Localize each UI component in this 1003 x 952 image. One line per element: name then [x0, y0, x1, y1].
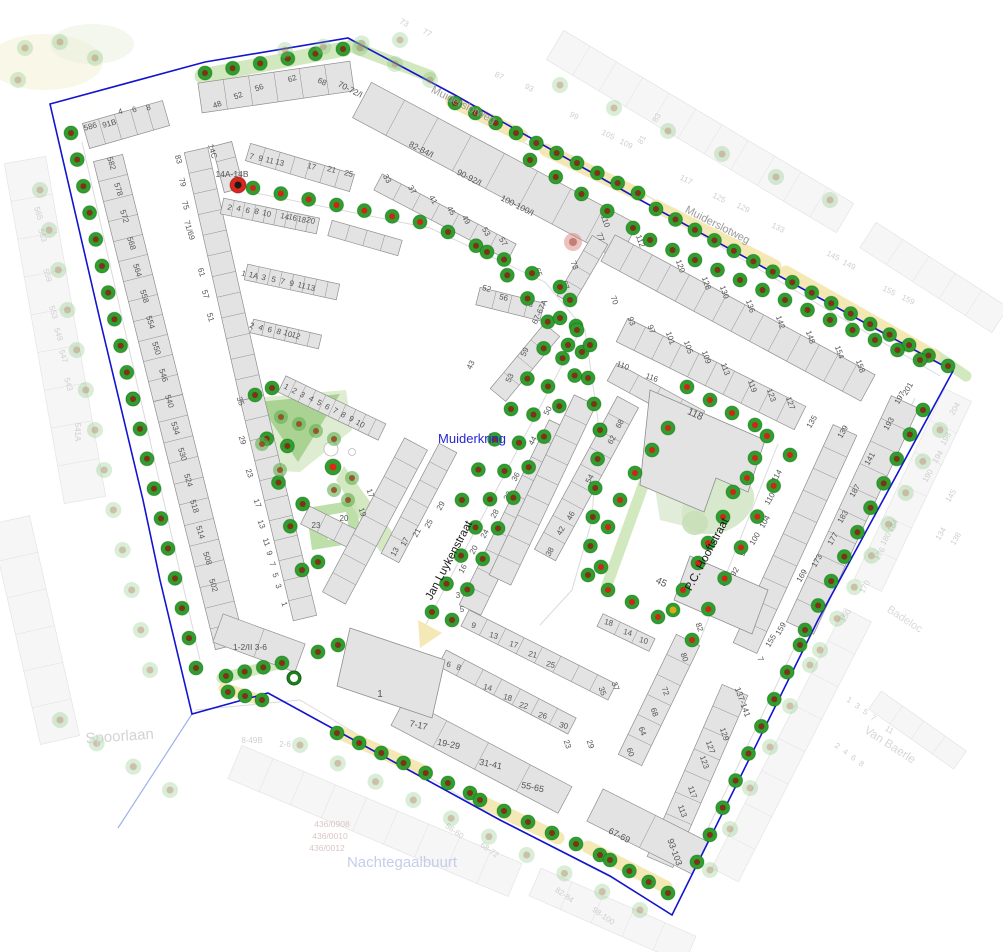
tree-marker[interactable]	[793, 638, 807, 652]
tree-marker[interactable]	[277, 42, 293, 58]
house-number-label: 25	[423, 517, 435, 530]
tree-marker[interactable]	[509, 126, 523, 140]
tree-marker[interactable]	[523, 153, 537, 167]
tree-marker[interactable]	[553, 280, 567, 294]
tree-marker[interactable]	[824, 574, 838, 588]
tree-marker[interactable]	[476, 552, 490, 566]
house-number-label: 61	[196, 267, 207, 279]
tree-marker[interactable]	[575, 187, 589, 201]
tree-marker[interactable]	[750, 510, 764, 524]
tree-marker[interactable]	[837, 550, 851, 564]
tree-marker[interactable]	[315, 39, 331, 55]
tree-marker[interactable]	[685, 633, 699, 647]
tree-marker[interactable]	[606, 100, 622, 116]
house-number-label: 93	[523, 82, 536, 94]
tree-marker[interactable]	[603, 853, 617, 867]
tree-marker[interactable]	[385, 209, 399, 223]
tree-marker[interactable]	[292, 737, 308, 753]
house-number-label: 134	[934, 525, 949, 542]
tree-marker[interactable]	[622, 864, 636, 878]
tree-marker[interactable]	[740, 471, 754, 485]
tree-marker[interactable]	[756, 283, 770, 297]
tree-marker[interactable]	[387, 56, 403, 72]
street-label: Nachtegaalbuurt	[347, 854, 458, 871]
tree-marker[interactable]	[824, 296, 838, 310]
house-number-label: 23	[244, 467, 256, 479]
tree-marker[interactable]	[591, 452, 605, 466]
tree-marker[interactable]	[120, 365, 134, 379]
tree-marker[interactable]	[780, 665, 794, 679]
tree-marker[interactable]	[392, 32, 408, 48]
tree-marker[interactable]	[688, 223, 702, 237]
tree-marker[interactable]	[594, 884, 610, 900]
house-number-label: 159	[900, 293, 916, 307]
tree-marker[interactable]	[325, 459, 341, 475]
tree-marker[interactable]	[726, 485, 740, 499]
tree-marker[interactable]	[783, 448, 797, 462]
tree-marker[interactable]	[471, 463, 485, 477]
tree-marker[interactable]	[651, 610, 665, 624]
tree-marker[interactable]	[600, 204, 614, 218]
tree-marker[interactable]	[891, 343, 905, 357]
tree-marker[interactable]	[95, 259, 109, 273]
neighborhood-tree-map: 58691B4685825785725685645585545505465405…	[0, 0, 1003, 952]
tree-marker[interactable]	[107, 312, 121, 326]
tree-marker[interactable]	[272, 476, 286, 490]
tree-marker[interactable]	[189, 661, 203, 675]
tree-marker[interactable]	[643, 233, 657, 247]
house-number-label: 159	[774, 620, 789, 637]
tree-marker[interactable]	[327, 483, 341, 497]
tree-marker[interactable]	[590, 166, 604, 180]
tree-marker[interactable]	[32, 182, 48, 198]
tree-marker[interactable]	[521, 815, 535, 829]
tree-marker[interactable]	[154, 512, 168, 526]
tree-marker[interactable]	[748, 418, 762, 432]
tree-marker[interactable]	[864, 501, 878, 515]
tree-marker[interactable]	[537, 341, 551, 355]
tree-marker[interactable]	[374, 746, 388, 760]
house-number-label: 5	[270, 572, 280, 580]
tree-marker[interactable]	[734, 541, 748, 555]
tree-marker[interactable]	[497, 253, 511, 267]
tree-marker[interactable]	[182, 631, 196, 645]
tree-marker[interactable]	[703, 828, 717, 842]
street-label: Badeloc	[885, 604, 925, 636]
tree-marker[interactable]	[883, 328, 897, 342]
tree-marker[interactable]	[140, 452, 154, 466]
tree-marker[interactable]	[133, 622, 149, 638]
tree-marker[interactable]	[311, 645, 325, 659]
tree-marker[interactable]	[782, 698, 798, 714]
tree-marker[interactable]	[87, 422, 103, 438]
tree-marker[interactable]	[932, 422, 948, 438]
tree-marker[interactable]	[425, 605, 439, 619]
tree-marker[interactable]	[230, 177, 246, 193]
tree-marker[interactable]	[124, 582, 140, 598]
tree-marker[interactable]	[126, 392, 140, 406]
tree-marker[interactable]	[846, 323, 860, 337]
tree-marker[interactable]	[76, 179, 90, 193]
tree-marker[interactable]	[311, 555, 325, 569]
tree-marker[interactable]	[287, 671, 301, 685]
tree-marker[interactable]	[725, 406, 739, 420]
house-number-label: 29	[237, 434, 249, 446]
tree-marker[interactable]	[568, 369, 582, 383]
house-number-label: 3	[853, 701, 862, 711]
tree-marker[interactable]	[405, 792, 421, 808]
tree-marker[interactable]	[811, 599, 825, 613]
tree-marker[interactable]	[441, 776, 455, 790]
tree-marker[interactable]	[746, 254, 760, 268]
tree-marker[interactable]	[722, 821, 738, 837]
tree-marker[interactable]	[748, 451, 762, 465]
house-number-label: 6	[849, 753, 858, 763]
tree-marker[interactable]	[345, 471, 359, 485]
tree-marker[interactable]	[265, 381, 279, 395]
tree-marker[interactable]	[570, 156, 584, 170]
tree-marker[interactable]	[552, 77, 568, 93]
tree-marker[interactable]	[583, 539, 597, 553]
tree-marker[interactable]	[822, 192, 838, 208]
building	[529, 868, 696, 952]
tree-marker[interactable]	[553, 311, 567, 325]
house-number-label: 2-6	[279, 740, 291, 749]
tree-marker[interactable]	[660, 123, 676, 139]
tree-marker[interactable]	[83, 206, 97, 220]
tree-marker[interactable]	[881, 516, 897, 532]
tree-marker[interactable]	[661, 421, 675, 435]
tree-marker[interactable]	[690, 855, 704, 869]
house-number-label: 51	[205, 312, 216, 324]
tree-marker[interactable]	[829, 611, 845, 627]
tree-marker[interactable]	[661, 886, 675, 900]
house-number-label: 77	[421, 27, 434, 39]
tree-marker[interactable]	[357, 204, 371, 218]
tree-marker[interactable]	[666, 243, 680, 257]
tree-marker[interactable]	[742, 780, 758, 796]
house-number-label: 71/69	[182, 219, 197, 241]
house-number-label: 45	[654, 575, 669, 590]
house-number-label: 8-49B	[241, 736, 262, 745]
tree-marker[interactable]	[711, 263, 725, 277]
cadastral-label: 436/0010	[312, 831, 348, 841]
tree-marker[interactable]	[10, 72, 26, 88]
tree-marker[interactable]	[521, 292, 535, 306]
tree-marker[interactable]	[863, 548, 879, 564]
tree-marker[interactable]	[545, 826, 559, 840]
tree-marker[interactable]	[863, 317, 877, 331]
tree-marker[interactable]	[64, 126, 78, 140]
tree-marker[interactable]	[688, 253, 702, 267]
house-number-label: 5	[861, 707, 870, 717]
tree-marker[interactable]	[541, 379, 555, 393]
tree-marker[interactable]	[133, 422, 147, 436]
tree-marker[interactable]	[941, 359, 955, 373]
tree-marker[interactable]	[41, 222, 57, 238]
tree-marker[interactable]	[915, 453, 931, 469]
tree-marker[interactable]	[506, 491, 520, 505]
tree-marker[interactable]	[147, 482, 161, 496]
tree-marker[interactable]	[296, 497, 310, 511]
tree-marker[interactable]	[762, 739, 778, 755]
tree-marker[interactable]	[96, 462, 112, 478]
tree-marker[interactable]	[850, 525, 864, 539]
tree-marker[interactable]	[556, 865, 572, 881]
tree-marker[interactable]	[397, 756, 411, 770]
tree-marker[interactable]	[714, 146, 730, 162]
tree-marker[interactable]	[666, 603, 680, 617]
tree-marker[interactable]	[52, 712, 68, 728]
house-number-label: 99	[568, 110, 581, 122]
tree-marker[interactable]	[280, 439, 294, 453]
tree-marker[interactable]	[275, 656, 289, 670]
tree-marker[interactable]	[716, 801, 730, 815]
tree-marker[interactable]	[767, 479, 781, 493]
tree-marker[interactable]	[527, 408, 541, 422]
tree-marker[interactable]	[550, 146, 564, 160]
tree-marker[interactable]	[274, 187, 288, 201]
tree-marker[interactable]	[162, 782, 178, 798]
tree-marker[interactable]	[302, 192, 316, 206]
tree-marker[interactable]	[336, 42, 350, 56]
tree-marker[interactable]	[273, 463, 287, 477]
tree-marker[interactable]	[564, 233, 582, 251]
tree-marker[interactable]	[798, 623, 812, 637]
house-number-label: 43	[465, 359, 477, 371]
tree-marker[interactable]	[327, 432, 341, 446]
tree-marker[interactable]	[341, 493, 355, 507]
tree-marker[interactable]	[142, 662, 158, 678]
house-number-label: 14A-14B	[215, 169, 248, 179]
tree-marker[interactable]	[767, 692, 781, 706]
tree-marker[interactable]	[785, 275, 799, 289]
tree-marker[interactable]	[701, 602, 715, 616]
tree-marker[interactable]	[718, 571, 732, 585]
tree-marker[interactable]	[219, 669, 233, 683]
tree-marker[interactable]	[649, 202, 663, 216]
tree-marker[interactable]	[481, 829, 497, 845]
tree-marker[interactable]	[570, 323, 584, 337]
house-number-label: 20	[340, 514, 349, 523]
tree-marker[interactable]	[727, 244, 741, 258]
tree-marker[interactable]	[115, 542, 131, 558]
tree-marker[interactable]	[563, 293, 577, 307]
tree-marker[interactable]	[368, 774, 384, 790]
tree-marker[interactable]	[916, 403, 930, 417]
house-number-label: 100	[748, 530, 763, 547]
tree-marker[interactable]	[556, 351, 570, 365]
tree-marker[interactable]	[581, 568, 595, 582]
tree-marker[interactable]	[89, 232, 103, 246]
tree-marker[interactable]	[441, 225, 455, 239]
tree-marker[interactable]	[460, 582, 474, 596]
tree-marker[interactable]	[628, 466, 642, 480]
tree-marker[interactable]	[17, 40, 33, 56]
tree-marker[interactable]	[175, 601, 189, 615]
tree-marker[interactable]	[198, 66, 212, 80]
house-number-label: 81	[636, 133, 649, 146]
house-number-label: 129	[735, 201, 751, 215]
tree-marker[interactable]	[330, 755, 346, 771]
tree-marker[interactable]	[601, 583, 615, 597]
tree-marker[interactable]	[168, 571, 182, 585]
house-number-label: 16	[457, 562, 469, 575]
house-number-label: 3	[273, 583, 283, 591]
tree-marker[interactable]	[331, 638, 345, 652]
house-number-label: 70	[609, 294, 621, 306]
tree-marker[interactable]	[812, 642, 828, 658]
house-number-label: 29	[585, 738, 597, 750]
tree-marker[interactable]	[611, 176, 625, 190]
tree-marker[interactable]	[500, 268, 514, 282]
tree-marker[interactable]	[760, 429, 774, 443]
tree-marker[interactable]	[537, 430, 551, 444]
playground-circle	[349, 449, 356, 456]
tree-marker[interactable]	[766, 265, 780, 279]
tree-marker[interactable]	[52, 34, 68, 50]
tree-marker[interactable]	[877, 476, 891, 490]
tree-marker[interactable]	[844, 307, 858, 321]
house-number-label: 3	[456, 591, 461, 600]
tree-marker[interactable]	[473, 793, 487, 807]
tree-marker[interactable]	[498, 464, 512, 478]
tree-marker[interactable]	[903, 427, 917, 441]
tree-marker[interactable]	[625, 595, 639, 609]
tree-marker[interactable]	[802, 657, 818, 673]
tree-marker[interactable]	[255, 437, 269, 451]
tree-marker[interactable]	[69, 342, 85, 358]
tree-marker[interactable]	[846, 579, 862, 595]
tree-marker[interactable]	[292, 417, 306, 431]
tree-marker[interactable]	[445, 613, 459, 627]
tree-marker[interactable]	[778, 293, 792, 307]
tree-marker[interactable]	[238, 689, 252, 703]
tree-marker[interactable]	[613, 493, 627, 507]
tree-marker[interactable]	[522, 460, 536, 474]
tree-marker[interactable]	[593, 423, 607, 437]
cadastral-label: 436/0908	[314, 819, 350, 829]
tree-marker[interactable]	[754, 719, 768, 733]
house-number-label: 145	[825, 249, 841, 263]
tree-marker[interactable]	[419, 766, 433, 780]
tree-marker[interactable]	[707, 233, 721, 247]
tree-marker[interactable]	[105, 502, 121, 518]
tree-marker[interactable]	[529, 136, 543, 150]
tree-marker[interactable]	[520, 372, 534, 386]
tree-marker[interactable]	[583, 338, 597, 352]
tree-marker[interactable]	[352, 40, 368, 56]
tree-marker[interactable]	[309, 424, 323, 438]
tree-marker[interactable]	[569, 837, 583, 851]
tree-marker[interactable]	[823, 313, 837, 327]
tree-marker[interactable]	[868, 333, 882, 347]
tree-marker[interactable]	[702, 862, 718, 878]
tree-marker[interactable]	[631, 186, 645, 200]
tree-marker[interactable]	[480, 245, 494, 259]
tree-marker[interactable]	[78, 382, 94, 398]
tree-marker[interactable]	[352, 736, 366, 750]
tree-marker[interactable]	[221, 685, 235, 699]
tree-marker[interactable]	[601, 520, 615, 534]
tree-marker[interactable]	[50, 262, 66, 278]
tree-marker[interactable]	[114, 339, 128, 353]
tree-marker[interactable]	[519, 847, 535, 863]
tree-marker[interactable]	[733, 273, 747, 287]
tree-marker[interactable]	[525, 266, 539, 280]
tree-marker[interactable]	[645, 443, 659, 457]
tree-marker[interactable]	[413, 215, 427, 229]
tree-marker[interactable]	[668, 212, 682, 226]
house-number-label: 75	[180, 200, 191, 212]
tree-marker[interactable]	[801, 303, 815, 317]
tree-marker[interactable]	[443, 810, 459, 826]
tree-marker[interactable]	[549, 170, 563, 184]
tree-marker[interactable]	[161, 541, 175, 555]
house-number-label: 23	[562, 738, 574, 750]
tree-marker[interactable]	[483, 492, 497, 506]
tree-marker[interactable]	[913, 353, 927, 367]
tree-marker[interactable]	[898, 485, 914, 501]
tree-marker[interactable]	[805, 286, 819, 300]
tree-marker[interactable]	[504, 402, 518, 416]
tree-marker[interactable]	[642, 875, 656, 889]
tree-marker[interactable]	[274, 410, 288, 424]
tree-marker[interactable]	[512, 436, 526, 450]
tree-marker[interactable]	[70, 153, 84, 167]
house-number-label: 109	[618, 137, 634, 151]
tree-marker[interactable]	[703, 393, 717, 407]
tree-marker[interactable]	[255, 693, 269, 707]
tree-marker[interactable]	[632, 902, 648, 918]
house-number-label: 1	[279, 601, 289, 609]
house-number-label: 87	[493, 70, 506, 82]
tree-marker[interactable]	[586, 510, 600, 524]
tree-marker[interactable]	[890, 452, 904, 466]
tree-marker[interactable]	[742, 747, 756, 761]
tree-marker[interactable]	[455, 493, 469, 507]
tree-marker[interactable]	[253, 56, 267, 70]
street-label: Spoorlaan	[85, 726, 154, 748]
tree-marker[interactable]	[246, 181, 260, 195]
tree-marker[interactable]	[594, 560, 608, 574]
tree-marker[interactable]	[125, 759, 141, 775]
tree-marker[interactable]	[87, 50, 103, 66]
tree-marker[interactable]	[60, 302, 76, 318]
tree-marker[interactable]	[729, 774, 743, 788]
tree-marker[interactable]	[680, 380, 694, 394]
tree-marker[interactable]	[330, 198, 344, 212]
tree-marker[interactable]	[581, 371, 595, 385]
tree-marker[interactable]	[587, 397, 601, 411]
tree-marker[interactable]	[248, 388, 262, 402]
tree-marker[interactable]	[552, 399, 566, 413]
tree-marker[interactable]	[497, 804, 511, 818]
tree-marker[interactable]	[101, 286, 115, 300]
tree-marker[interactable]	[588, 481, 602, 495]
tree-marker[interactable]	[626, 221, 640, 235]
tree-marker[interactable]	[238, 665, 252, 679]
tree-marker[interactable]	[491, 521, 505, 535]
tree-marker[interactable]	[561, 338, 575, 352]
tree-marker[interactable]	[295, 563, 309, 577]
house-number-label: 541A	[73, 423, 82, 442]
tree-marker[interactable]	[330, 726, 344, 740]
tree-marker[interactable]	[226, 61, 240, 75]
tree-marker[interactable]	[256, 660, 270, 674]
tree-marker[interactable]	[283, 519, 297, 533]
tree-marker[interactable]	[768, 169, 784, 185]
